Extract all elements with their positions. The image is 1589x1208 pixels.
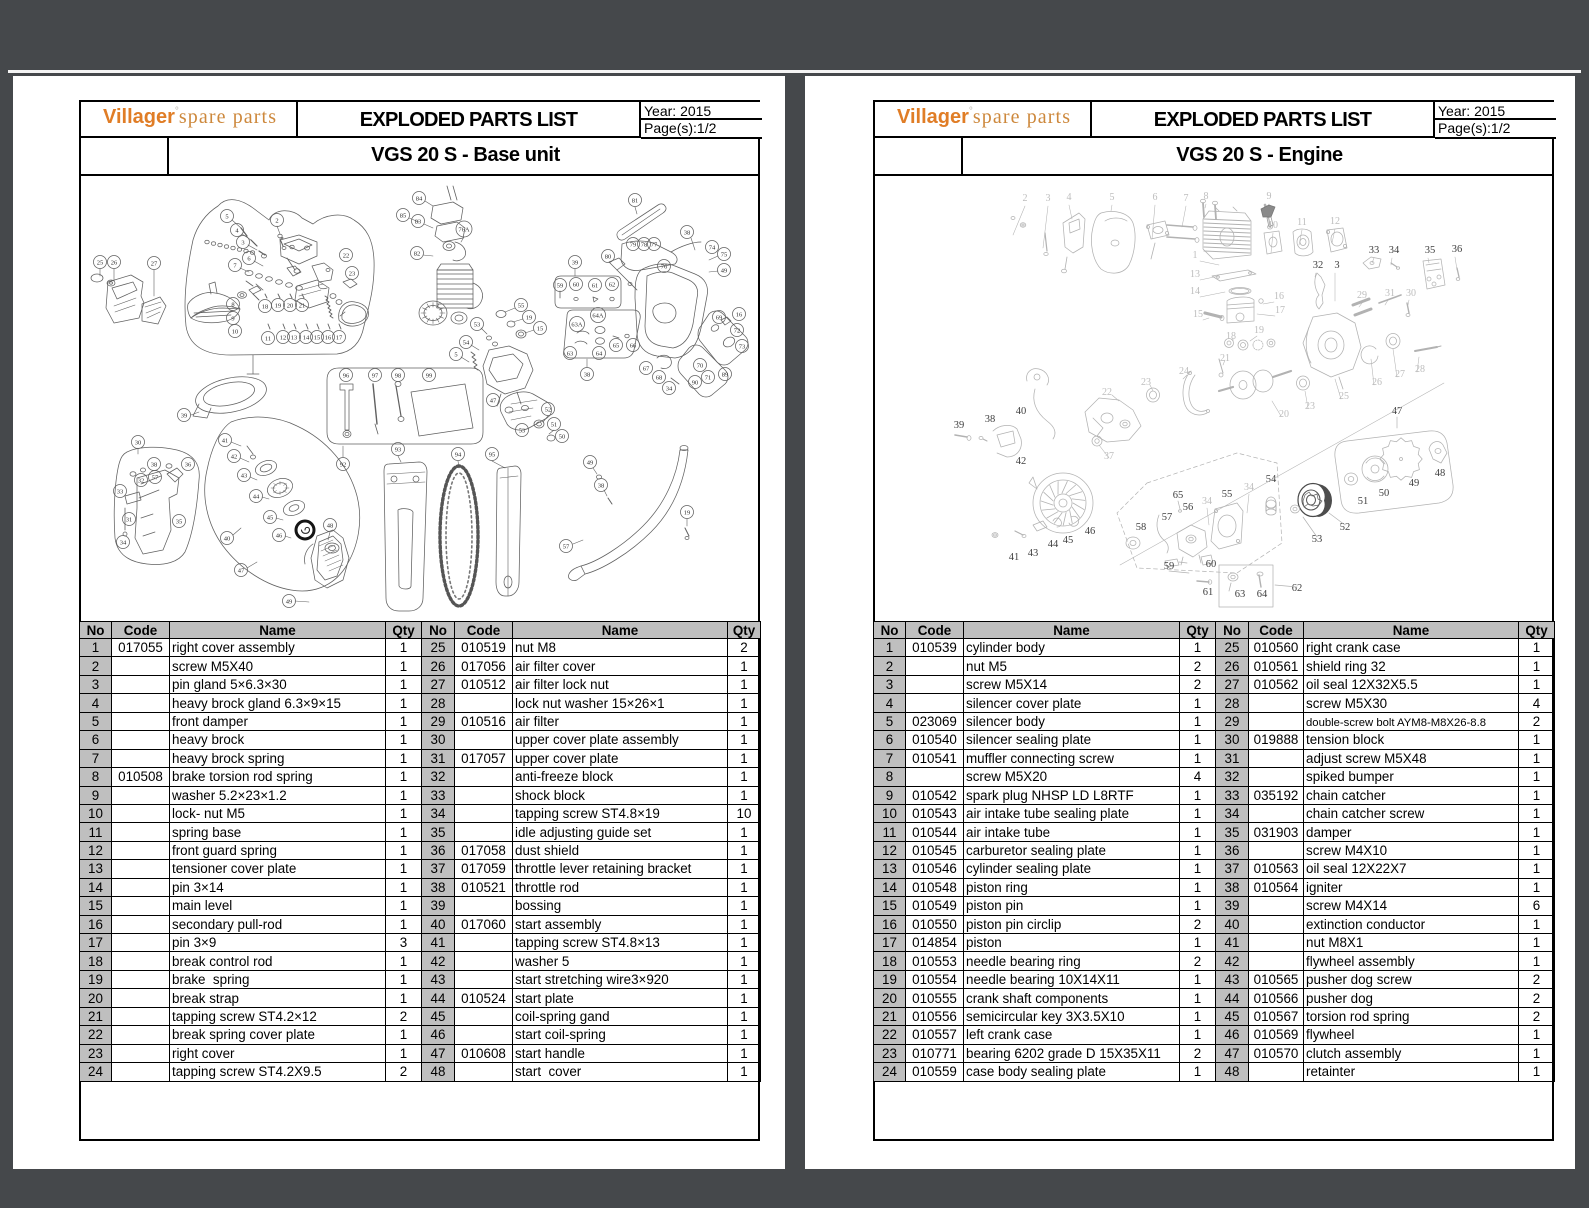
svg-text:20: 20 — [1279, 409, 1289, 420]
svg-text:49: 49 — [286, 598, 293, 605]
svg-text:36: 36 — [185, 461, 192, 468]
svg-text:47: 47 — [490, 397, 497, 404]
svg-text:72: 72 — [734, 327, 741, 334]
svg-text:15: 15 — [537, 325, 544, 332]
svg-text:15: 15 — [314, 334, 321, 341]
svg-text:40: 40 — [1016, 406, 1027, 417]
svg-text:51: 51 — [551, 421, 558, 428]
svg-text:48: 48 — [327, 522, 334, 529]
svg-text:41: 41 — [1009, 552, 1020, 563]
svg-text:38: 38 — [985, 414, 996, 425]
svg-text:10: 10 — [232, 328, 239, 335]
svg-text:94: 94 — [455, 451, 462, 458]
svg-text:95: 95 — [489, 451, 496, 458]
svg-text:23: 23 — [349, 270, 356, 277]
svg-text:16: 16 — [1274, 291, 1284, 302]
svg-text:62: 62 — [609, 281, 616, 288]
svg-text:8: 8 — [1204, 191, 1209, 202]
svg-text:15: 15 — [1193, 309, 1203, 320]
svg-text:44: 44 — [1048, 539, 1059, 550]
svg-text:14: 14 — [303, 334, 310, 341]
svg-text:84: 84 — [416, 195, 423, 202]
svg-text:93: 93 — [395, 446, 402, 453]
svg-text:52: 52 — [1340, 522, 1351, 533]
svg-text:16: 16 — [736, 311, 743, 318]
svg-text:29: 29 — [1357, 290, 1367, 301]
svg-text:39: 39 — [181, 412, 188, 419]
svg-text:96: 96 — [343, 372, 350, 379]
svg-text:59: 59 — [1164, 561, 1175, 572]
svg-text:44: 44 — [253, 493, 260, 500]
svg-text:76: 76 — [661, 263, 668, 270]
svg-text:2: 2 — [275, 217, 278, 224]
svg-text:49: 49 — [587, 459, 594, 466]
svg-text:64: 64 — [596, 350, 603, 357]
svg-text:63: 63 — [1235, 589, 1246, 600]
svg-text:30: 30 — [1406, 288, 1416, 299]
svg-text:4: 4 — [1067, 192, 1072, 203]
svg-text:31: 31 — [126, 516, 133, 523]
svg-text:65: 65 — [1173, 490, 1184, 501]
svg-text:57: 57 — [152, 474, 159, 481]
svg-text:64A: 64A — [592, 312, 604, 319]
svg-text:19: 19 — [1254, 325, 1264, 336]
svg-text:43: 43 — [1028, 548, 1039, 559]
svg-text:75: 75 — [721, 251, 728, 258]
svg-text:83: 83 — [415, 218, 422, 225]
svg-text:11: 11 — [1297, 217, 1307, 228]
svg-text:7: 7 — [1184, 193, 1189, 204]
svg-text:82: 82 — [414, 250, 421, 257]
svg-text:42: 42 — [231, 453, 238, 460]
svg-text:12: 12 — [1330, 216, 1340, 227]
svg-text:35: 35 — [176, 518, 183, 525]
svg-text:22: 22 — [1102, 387, 1112, 398]
svg-text:67: 67 — [643, 365, 650, 372]
svg-text:61: 61 — [1203, 587, 1214, 598]
svg-text:32: 32 — [1313, 260, 1324, 271]
svg-text:23: 23 — [1141, 377, 1151, 388]
svg-text:39: 39 — [954, 420, 965, 431]
svg-text:79: 79 — [630, 241, 637, 248]
svg-text:92: 92 — [340, 461, 347, 468]
svg-text:18: 18 — [262, 303, 269, 310]
svg-text:73: 73 — [739, 343, 746, 350]
svg-text:22: 22 — [343, 252, 350, 259]
svg-text:19: 19 — [275, 302, 282, 309]
svg-text:78: 78 — [641, 241, 648, 248]
svg-text:68: 68 — [656, 374, 663, 381]
svg-text:45: 45 — [1063, 535, 1074, 546]
svg-text:39: 39 — [572, 259, 579, 266]
svg-text:37: 37 — [1104, 451, 1114, 462]
svg-text:43: 43 — [241, 472, 248, 479]
svg-text:99: 99 — [426, 372, 433, 379]
svg-text:49: 49 — [721, 267, 728, 274]
svg-text:74: 74 — [709, 244, 716, 251]
svg-text:40: 40 — [224, 535, 231, 542]
svg-text:33: 33 — [1369, 245, 1380, 256]
svg-text:3: 3 — [1046, 193, 1051, 204]
svg-text:81: 81 — [632, 197, 639, 204]
svg-text:30: 30 — [135, 439, 142, 446]
svg-text:21: 21 — [299, 302, 306, 309]
svg-text:5: 5 — [454, 351, 457, 358]
svg-text:38: 38 — [684, 229, 691, 236]
svg-text:6: 6 — [247, 255, 251, 262]
svg-text:54: 54 — [463, 339, 470, 346]
svg-text:20: 20 — [287, 302, 294, 309]
svg-text:55: 55 — [518, 302, 525, 309]
svg-text:90: 90 — [692, 379, 699, 386]
svg-text:38: 38 — [598, 482, 605, 489]
svg-text:60: 60 — [573, 281, 580, 288]
svg-text:4: 4 — [235, 227, 239, 234]
svg-text:63: 63 — [567, 350, 574, 357]
svg-text:38: 38 — [151, 461, 158, 468]
svg-text:27: 27 — [151, 260, 158, 267]
svg-text:5: 5 — [225, 213, 228, 220]
svg-text:59: 59 — [557, 282, 564, 289]
svg-text:57: 57 — [1162, 512, 1173, 523]
svg-text:57: 57 — [563, 543, 570, 550]
svg-text:31: 31 — [1385, 288, 1395, 299]
svg-text:12: 12 — [280, 334, 287, 341]
svg-text:3: 3 — [241, 239, 244, 246]
svg-text:19: 19 — [684, 509, 691, 516]
svg-text:33: 33 — [117, 488, 124, 495]
svg-text:3: 3 — [1334, 260, 1339, 271]
svg-text:13: 13 — [291, 334, 298, 341]
svg-text:41: 41 — [222, 437, 229, 444]
svg-text:21: 21 — [1220, 353, 1230, 364]
svg-text:11: 11 — [265, 335, 271, 342]
svg-text:38: 38 — [584, 371, 591, 378]
svg-text:23: 23 — [1305, 401, 1315, 412]
svg-text:6: 6 — [1153, 192, 1158, 203]
svg-text:46: 46 — [276, 532, 283, 539]
svg-text:34: 34 — [666, 385, 673, 392]
svg-text:35: 35 — [1425, 245, 1436, 256]
svg-text:48: 48 — [1435, 468, 1446, 479]
svg-text:24: 24 — [1179, 366, 1189, 377]
svg-text:70: 70 — [697, 362, 704, 369]
svg-text:52: 52 — [545, 406, 552, 413]
svg-text:89: 89 — [722, 371, 729, 378]
svg-text:18: 18 — [1226, 331, 1236, 342]
svg-text:56: 56 — [1183, 502, 1194, 513]
svg-text:1: 1 — [1193, 250, 1198, 261]
svg-text:19: 19 — [526, 314, 533, 321]
svg-text:80: 80 — [605, 253, 612, 260]
svg-text:62: 62 — [1292, 583, 1303, 594]
svg-text:53: 53 — [519, 427, 526, 434]
svg-text:34: 34 — [1389, 245, 1400, 256]
svg-text:28: 28 — [1415, 364, 1425, 375]
svg-text:49: 49 — [1409, 478, 1420, 489]
svg-text:51: 51 — [1358, 496, 1369, 507]
svg-text:42: 42 — [1016, 456, 1027, 467]
svg-text:53: 53 — [1312, 534, 1323, 545]
svg-text:63A: 63A — [571, 321, 583, 328]
svg-text:13: 13 — [1190, 269, 1200, 280]
svg-text:66: 66 — [630, 342, 637, 349]
svg-text:7: 7 — [233, 262, 237, 269]
svg-text:98: 98 — [395, 372, 402, 379]
svg-text:34: 34 — [1202, 496, 1212, 507]
svg-text:54: 54 — [1266, 474, 1277, 485]
svg-text:53: 53 — [474, 321, 481, 328]
svg-text:45: 45 — [267, 514, 274, 521]
svg-text:50: 50 — [1379, 488, 1390, 499]
svg-text:2: 2 — [1023, 193, 1028, 204]
svg-text:26: 26 — [111, 259, 118, 266]
svg-text:34: 34 — [120, 539, 127, 546]
svg-text:58: 58 — [1136, 522, 1147, 533]
svg-text:14: 14 — [1190, 286, 1200, 297]
svg-text:46: 46 — [1085, 526, 1096, 537]
svg-text:17: 17 — [1275, 305, 1285, 316]
svg-text:61: 61 — [592, 282, 599, 289]
svg-text:65: 65 — [613, 342, 620, 349]
svg-text:17: 17 — [336, 334, 343, 341]
svg-text:77: 77 — [651, 241, 658, 248]
svg-text:34: 34 — [1244, 482, 1254, 493]
svg-text:36: 36 — [1452, 244, 1463, 255]
svg-text:9: 9 — [1267, 191, 1272, 202]
svg-text:85: 85 — [400, 212, 407, 219]
svg-text:25: 25 — [97, 259, 104, 266]
svg-text:64: 64 — [1257, 589, 1268, 600]
svg-text:16: 16 — [325, 334, 332, 341]
svg-text:10: 10 — [1268, 220, 1278, 231]
svg-text:55: 55 — [1222, 489, 1233, 500]
svg-text:97: 97 — [372, 372, 379, 379]
svg-text:5: 5 — [1110, 192, 1115, 203]
svg-text:71: 71 — [705, 374, 712, 381]
svg-text:47: 47 — [238, 567, 245, 574]
svg-text:60: 60 — [1206, 559, 1217, 570]
svg-text:50: 50 — [559, 433, 566, 440]
